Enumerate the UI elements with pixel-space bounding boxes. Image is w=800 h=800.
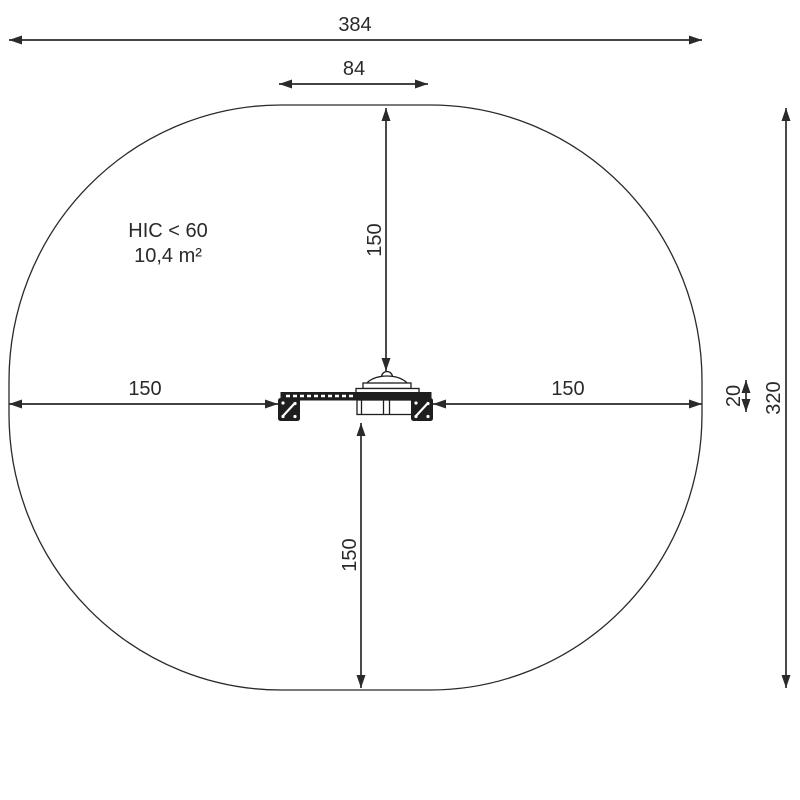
base-box [357, 400, 419, 415]
safety-zone-drawing: 384 84 150 150 150 150 20 320 HIC < 60 1… [0, 0, 800, 800]
dim-top-clearance: 150 [364, 108, 386, 371]
dim-item-depth: 20 [723, 380, 746, 412]
anchor-foot-left [279, 399, 300, 421]
dim-left-clearance-label: 150 [128, 378, 161, 400]
diagram-canvas: 384 84 150 150 150 150 20 320 HIC < 60 1… [0, 0, 800, 800]
hic-label: HIC < 60 [128, 220, 207, 242]
dim-item-width-label: 84 [343, 58, 365, 80]
dim-total-depth: 320 [763, 108, 786, 688]
dim-left-clearance: 150 [9, 378, 278, 404]
dim-right-clearance-label: 150 [551, 378, 584, 400]
zone-annotation: HIC < 60 10,4 m² [128, 220, 207, 267]
dim-total-width: 384 [9, 14, 702, 40]
dim-total-width-label: 384 [338, 14, 371, 36]
dim-bottom-clearance: 150 [339, 423, 361, 688]
dome-plinth-upper [363, 383, 411, 389]
anchor-foot-right [412, 399, 433, 421]
dim-top-clearance-label: 150 [364, 223, 386, 256]
dim-item-depth-label: 20 [723, 385, 745, 407]
equipment-side-view [279, 372, 433, 421]
dim-bottom-clearance-label: 150 [339, 538, 361, 571]
dim-right-clearance: 150 [433, 378, 702, 404]
dim-item-width: 84 [279, 58, 428, 84]
area-label: 10,4 m² [134, 245, 202, 267]
dim-total-depth-label: 320 [763, 381, 785, 414]
